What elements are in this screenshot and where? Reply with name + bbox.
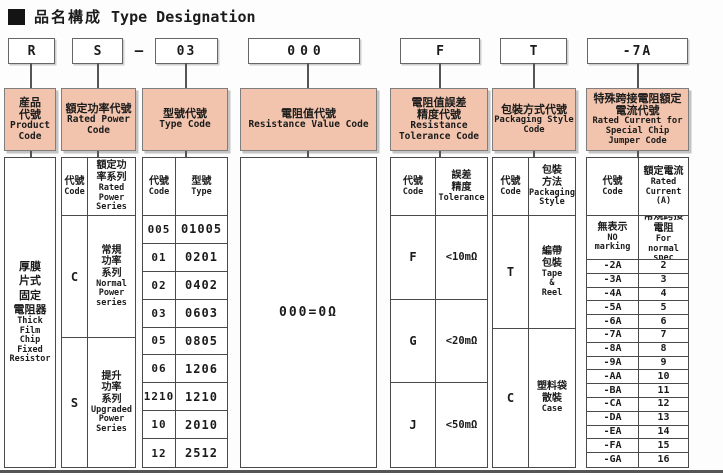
- connector-line: [439, 63, 441, 88]
- current-value-cell: 15: [639, 439, 688, 453]
- type-subheader-type: 型號 Type: [176, 158, 227, 216]
- type-size-cell: 1206: [176, 355, 227, 383]
- current-code-cell: -BA: [587, 384, 639, 398]
- page-title-zh: 品名構成: [34, 6, 102, 27]
- current-code-cell: -EA: [587, 426, 639, 440]
- type-size-cell: 2512: [176, 439, 227, 467]
- packaging-subheader-style: 包裝 方法 Packaging Style: [529, 158, 575, 216]
- header-type-en: Type Code: [159, 120, 210, 130]
- current-column: 代號 Code 額定電流 Rated Current (A) 無表示 NO ma…: [586, 157, 689, 468]
- current-code-cell: -CA: [587, 398, 639, 412]
- current-code-cell: -7A: [587, 329, 639, 343]
- power-subheader-code: 代號 Code: [62, 158, 88, 216]
- current-code-cell: -9A: [587, 357, 639, 371]
- current-code-cell: -8A: [587, 343, 639, 357]
- current-value-cell: 6: [639, 315, 688, 329]
- connector-line: [533, 63, 535, 88]
- page-title-en: Type Designation: [111, 8, 256, 26]
- type-code-cell: 06: [143, 355, 176, 383]
- current-value-cell: 11: [639, 384, 688, 398]
- tolerance-subheader-code: 代號 Code: [391, 158, 436, 216]
- current-code-cell: -5A: [587, 301, 639, 315]
- type-code-cell: 05: [143, 328, 176, 356]
- packaging-code-cell: C: [493, 329, 529, 467]
- type-size-cell: 2010: [176, 411, 227, 439]
- power-row-desc: 常規 功率 系列 Normal Power series: [88, 216, 135, 338]
- current-code-cell: -2A: [587, 260, 639, 274]
- current-code-cell: -AA: [587, 370, 639, 384]
- packaging-desc-cell: 編帶 包裝 Tape & Reel: [529, 216, 575, 329]
- type-size-cell: 0603: [176, 300, 227, 328]
- current-value-cell: 3: [639, 274, 688, 288]
- header-product-en: Product Code: [10, 121, 50, 142]
- header-resistance-en: Resistance Value Code: [248, 120, 368, 130]
- header-product: 産品 代號 Product Code: [4, 88, 56, 151]
- header-tolerance-zh: 電阻值誤差 精度代號: [412, 97, 467, 122]
- current-code-cell: -6A: [587, 315, 639, 329]
- current-value-cell: 13: [639, 412, 688, 426]
- packaging-desc-cell: 塑料袋 散裝 Case: [529, 329, 575, 467]
- header-power-en: Rated Power Code: [67, 115, 130, 136]
- current-value-cell: 5: [639, 301, 688, 315]
- current-value-cell: 12: [639, 398, 688, 412]
- type-size-cell: 0805: [176, 328, 227, 356]
- tolerance-subheader-tol: 誤差 精度 Tolerance: [436, 158, 487, 216]
- current-value-cell: 10: [639, 370, 688, 384]
- current-value-cell: 14: [639, 426, 688, 440]
- current-code-cell: -GA: [587, 453, 639, 467]
- current-code-cell: -DA: [587, 412, 639, 426]
- current-code-cell: -3A: [587, 274, 639, 288]
- product-body-en: Thick Film Chip Fixed Resistor: [10, 317, 51, 365]
- current-value-cell: 9: [639, 357, 688, 371]
- tolerance-code-cell: J: [391, 383, 436, 467]
- current-value-cell: 8: [639, 343, 688, 357]
- packaging-column: 代號 Code 包裝 方法 Packaging Style T 編帶 包裝 Ta…: [492, 157, 576, 468]
- type-code-cell: 1210: [143, 383, 176, 411]
- type-code-cell: 12: [143, 439, 176, 467]
- resistance-column: 000=0Ω: [240, 157, 377, 468]
- current-subheader-code: 代號 Code: [587, 158, 639, 216]
- header-current-zh: 特殊跨接電阻額定 電流代號: [594, 93, 682, 118]
- current-code-cell: -4A: [587, 288, 639, 302]
- header-type: 型號代號 Type Code: [142, 88, 228, 151]
- product-body-cell: 厚膜 片式 固定 電阻器 Thick Film Chip Fixed Resis…: [5, 158, 55, 467]
- type-designation-page: 品名構成 Type Designation R S — 03 000 F T -…: [0, 0, 723, 475]
- type-code-cell: 10: [143, 411, 176, 439]
- header-packaging-en: Packaging Style Code: [494, 116, 573, 135]
- tolerance-value-cell: <20mΩ: [436, 300, 487, 384]
- power-subheader-series: 額定功 率系列 Rated Power Series: [88, 158, 135, 216]
- connector-line: [185, 63, 187, 88]
- connector-line: [637, 63, 639, 88]
- product-column: 厚膜 片式 固定 電阻器 Thick Film Chip Fixed Resis…: [4, 157, 56, 468]
- header-resistance: 電阻值代號 Resistance Value Code: [240, 88, 377, 151]
- packaging-code-cell: T: [493, 216, 529, 329]
- current-special-value-cell: 常規跨接 電阻 For normal spec: [639, 216, 688, 260]
- current-value-cell: 7: [639, 329, 688, 343]
- power-row-desc: 提升 功率 系列 Upgraded Power Series: [88, 338, 135, 467]
- current-code-cell: -FA: [587, 439, 639, 453]
- power-row-code: C: [62, 216, 88, 338]
- tolerance-value-cell: <50mΩ: [436, 383, 487, 467]
- code-box-current: -7A: [587, 38, 688, 64]
- code-box-tolerance: F: [400, 38, 480, 64]
- code-separator-dash: —: [126, 38, 152, 64]
- type-code-cell: 005: [143, 216, 176, 244]
- header-tolerance: 電阻值誤差 精度代號 Resistance Tolerance Code: [390, 88, 488, 151]
- type-code-cell: 01: [143, 244, 176, 272]
- header-product-zh: 産品 代號: [19, 97, 41, 122]
- code-box-product: R: [8, 38, 55, 64]
- page-title: 品名構成 Type Designation: [8, 6, 256, 27]
- connector-line: [97, 63, 99, 88]
- type-code-cell: 02: [143, 272, 176, 300]
- type-column: 代號 Code 型號 Type 005 01005 01 0201 02 040…: [142, 157, 228, 468]
- current-value-cell: 4: [639, 288, 688, 302]
- product-body-zh: 厚膜 片式 固定 電阻器: [14, 260, 47, 317]
- current-special-code-cell: 無表示 NO marking: [587, 216, 639, 260]
- type-size-cell: 0201: [176, 244, 227, 272]
- bottom-rule: [0, 470, 723, 473]
- connector-line: [307, 63, 309, 88]
- current-value-cell: 16: [639, 453, 688, 467]
- title-bullet-square-icon: [8, 9, 25, 25]
- code-box-type: 03: [155, 38, 218, 64]
- current-subheader-rated: 額定電流 Rated Current (A): [639, 158, 688, 216]
- resistance-value-cell: 000=0Ω: [241, 158, 376, 467]
- tolerance-code-cell: G: [391, 300, 436, 384]
- connector-line: [30, 63, 32, 88]
- type-code-cell: 03: [143, 300, 176, 328]
- power-row-code: S: [62, 338, 88, 467]
- type-size-cell: 1210: [176, 383, 227, 411]
- code-box-packaging: T: [500, 38, 567, 64]
- header-packaging: 包裝方式代號 Packaging Style Code: [492, 88, 576, 151]
- type-subheader-code: 代號 Code: [143, 158, 176, 216]
- tolerance-code-cell: F: [391, 216, 436, 300]
- current-value-cell: 2: [639, 260, 688, 274]
- header-tolerance-en: Resistance Tolerance Code: [399, 121, 479, 142]
- header-current: 特殊跨接電阻額定 電流代號 Rated Current for Special …: [586, 88, 689, 151]
- code-box-power: S: [72, 38, 123, 64]
- type-size-cell: 01005: [176, 216, 227, 244]
- power-column: 代號 Code 額定功 率系列 Rated Power Series C 常規 …: [61, 157, 136, 468]
- tolerance-value-cell: <10mΩ: [436, 216, 487, 300]
- tolerance-column: 代號 Code 誤差 精度 Tolerance F <10mΩ G <20mΩ …: [390, 157, 488, 468]
- header-power: 額定功率代號 Rated Power Code: [61, 88, 136, 151]
- code-box-resistance: 000: [248, 38, 360, 64]
- type-size-cell: 0402: [176, 272, 227, 300]
- packaging-subheader-code: 代號 Code: [493, 158, 529, 216]
- header-current-en: Rated Current for Special Chip Jumper Co…: [592, 117, 682, 146]
